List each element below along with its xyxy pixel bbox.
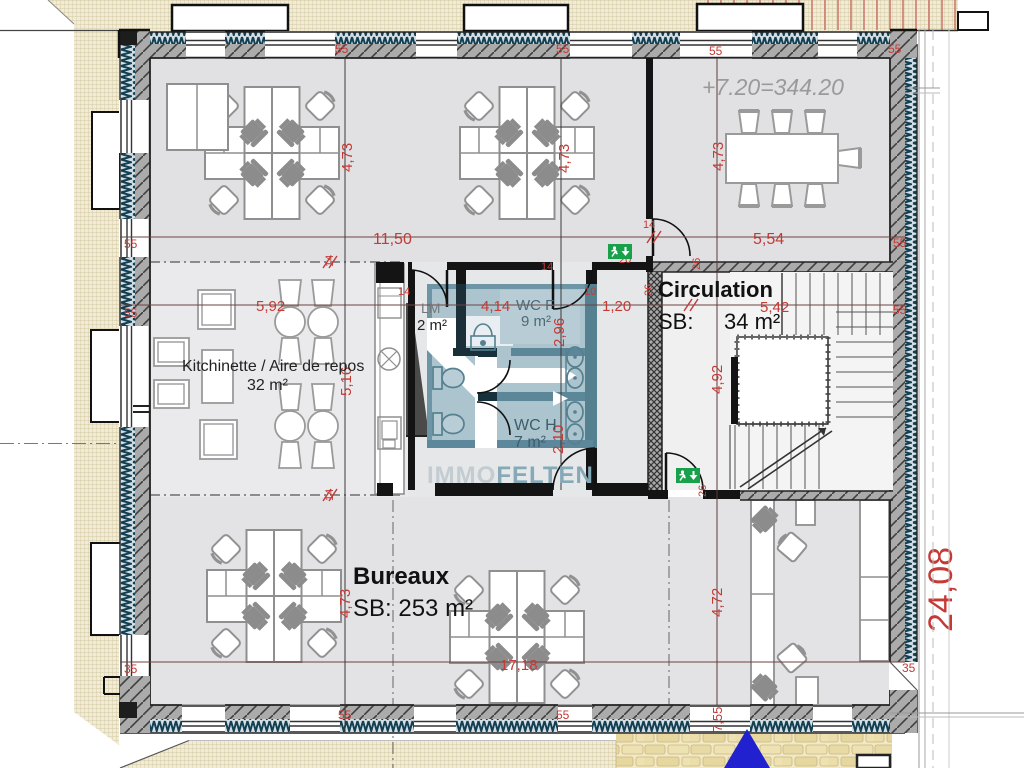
svg-text:24,08: 24,08 <box>922 547 960 632</box>
svg-text:55: 55 <box>335 42 349 56</box>
svg-text:55: 55 <box>893 236 907 250</box>
svg-text:32 m²: 32 m² <box>247 377 289 394</box>
svg-text:SB: 253 m²: SB: 253 m² <box>353 595 473 622</box>
svg-text:55: 55 <box>893 303 907 317</box>
svg-text:4,72: 4,72 <box>709 588 726 617</box>
svg-text:34 m²: 34 m² <box>724 309 780 334</box>
svg-text:5,54: 5,54 <box>753 231 784 248</box>
svg-text:LM: LM <box>421 300 440 316</box>
svg-text:14: 14 <box>398 286 410 298</box>
svg-text:4,14: 4,14 <box>481 298 510 315</box>
svg-text:14: 14 <box>541 261 553 273</box>
svg-text:5,92: 5,92 <box>256 298 285 315</box>
svg-text:17,18: 17,18 <box>500 657 538 674</box>
svg-text:IMMOFELTEN: IMMOFELTEN <box>427 462 594 489</box>
svg-text:WC F: WC F <box>516 297 554 314</box>
svg-text:1,20: 1,20 <box>602 298 631 315</box>
svg-text:55: 55 <box>124 306 138 320</box>
svg-text:10: 10 <box>584 286 596 298</box>
svg-text:Kitchinette / Aire de repos: Kitchinette / Aire de repos <box>182 358 364 375</box>
svg-text:4,92: 4,92 <box>709 365 726 394</box>
svg-text:11,50: 11,50 <box>373 231 412 248</box>
svg-text:4,73: 4,73 <box>556 144 573 173</box>
svg-text:4,73: 4,73 <box>339 143 356 172</box>
svg-text:Bureaux: Bureaux <box>353 563 450 590</box>
svg-text:2,96: 2,96 <box>551 318 568 347</box>
svg-text:55: 55 <box>556 708 570 722</box>
svg-text:55: 55 <box>124 237 138 251</box>
svg-text:+7.20=344.20: +7.20=344.20 <box>702 74 844 100</box>
svg-text:4,73: 4,73 <box>337 589 354 618</box>
svg-text:26: 26 <box>697 485 709 497</box>
svg-text:55: 55 <box>556 42 570 56</box>
svg-text:14: 14 <box>643 219 655 231</box>
svg-text:7 m²: 7 m² <box>514 434 547 451</box>
svg-text:35: 35 <box>124 662 138 676</box>
svg-text:4,73: 4,73 <box>710 142 727 171</box>
svg-text:7,55: 7,55 <box>710 707 725 732</box>
svg-text:2 m²: 2 m² <box>417 317 447 334</box>
svg-text:26: 26 <box>643 284 655 296</box>
svg-text:55: 55 <box>888 42 902 56</box>
svg-text:55: 55 <box>338 708 352 722</box>
svg-text:9 m²: 9 m² <box>521 313 551 330</box>
svg-text:55: 55 <box>709 44 723 58</box>
svg-text:SB:: SB: <box>658 309 693 334</box>
svg-text:Circulation: Circulation <box>658 277 773 302</box>
svg-text:26: 26 <box>691 258 703 270</box>
svg-text:35: 35 <box>902 661 916 675</box>
svg-text:WC H: WC H <box>514 417 557 434</box>
